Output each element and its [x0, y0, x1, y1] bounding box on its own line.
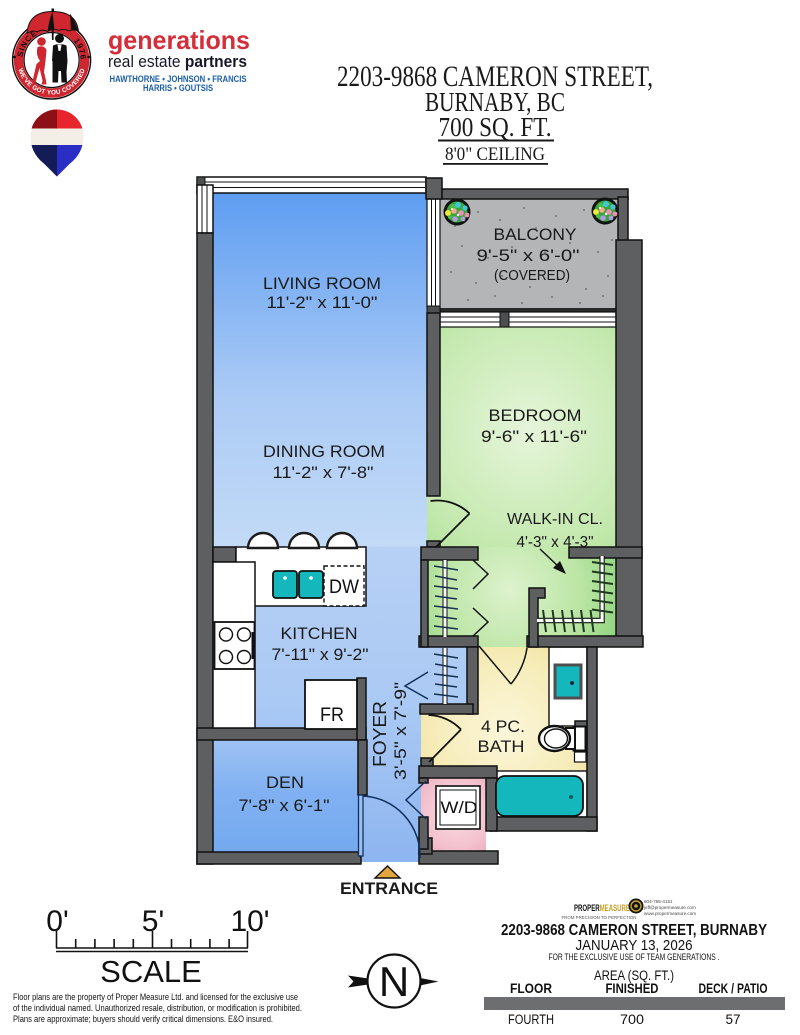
svg-text:FR: FR [320, 705, 344, 726]
svg-text:FINISHED: FINISHED [606, 981, 659, 996]
svg-text:FROM PRECISION TO PERFECTION: FROM PRECISION TO PERFECTION [562, 915, 637, 920]
svg-text:11'-2" x 7'-8": 11'-2" x 7'-8" [273, 463, 374, 482]
svg-text:FLOOR: FLOOR [510, 981, 552, 996]
svg-text:real estate partners: real estate partners [108, 52, 247, 71]
svg-text:BEDROOM: BEDROOM [489, 406, 582, 425]
svg-text:11'-2" x 11'-0": 11'-2" x 11'-0" [267, 293, 378, 312]
svg-text:of the individual named. Unaut: of the individual named. Unauthorized re… [13, 1003, 302, 1014]
svg-text:DECK / PATIO: DECK / PATIO [699, 981, 768, 996]
svg-text:DEN: DEN [266, 773, 304, 792]
svg-text:3'-5" x 7'-9": 3'-5" x 7'-9" [391, 682, 410, 780]
svg-text:BALCONY: BALCONY [494, 225, 577, 244]
svg-text:Plans are approximate; buyers: Plans are approximate; buyers should ver… [13, 1014, 273, 1025]
svg-text:DINING ROOM: DINING ROOM [263, 442, 385, 461]
svg-text:FOURTH: FOURTH [508, 1012, 554, 1027]
svg-text:9'-6" x 11'-6": 9'-6" x 11'-6" [481, 427, 587, 446]
svg-text:604-755-4151: 604-755-4151 [644, 899, 673, 904]
svg-text:W/D: W/D [441, 799, 478, 817]
svg-text:www.propermeasure.com: www.propermeasure.com [644, 911, 696, 916]
svg-text:4'-3" x 4'-3": 4'-3" x 4'-3" [517, 534, 594, 551]
svg-text:generations: generations [108, 25, 250, 55]
svg-text:N: N [379, 958, 409, 1005]
svg-text:Floor plans are the property o: Floor plans are the property of Proper M… [13, 992, 298, 1003]
svg-text:7'-11" x 9'-2": 7'-11" x 9'-2" [272, 645, 369, 664]
svg-text:8'0" CEILING: 8'0" CEILING [445, 144, 545, 165]
svg-text:SCALE: SCALE [100, 954, 202, 989]
svg-text:HARRIS • GOUTSIS: HARRIS • GOUTSIS [143, 83, 213, 94]
svg-text:4 PC.: 4 PC. [481, 717, 525, 736]
svg-text:9'-5" x 6'-0": 9'-5" x 6'-0" [477, 246, 580, 265]
svg-text:10': 10' [230, 905, 269, 938]
svg-text:WALK-IN CL.: WALK-IN CL. [507, 511, 603, 528]
svg-text:jeff@propermeasure.com: jeff@propermeasure.com [643, 905, 696, 910]
svg-text:DW: DW [329, 577, 359, 598]
svg-text:57: 57 [726, 1012, 741, 1027]
svg-text:BATH: BATH [478, 737, 525, 756]
svg-text:(COVERED): (COVERED) [494, 267, 570, 284]
svg-text:700: 700 [620, 1012, 644, 1027]
svg-text:PROPERMEASURE: PROPERMEASURE [574, 903, 630, 914]
svg-text:LIVING ROOM: LIVING ROOM [263, 274, 381, 293]
svg-text:0': 0' [46, 905, 68, 938]
svg-text:ENTRANCE: ENTRANCE [340, 880, 438, 898]
svg-text:KITCHEN: KITCHEN [281, 624, 358, 643]
svg-text:700 SQ. FT.: 700 SQ. FT. [439, 112, 552, 142]
svg-text:FOYER: FOYER [370, 701, 390, 767]
svg-text:7'-8" x 6'-1": 7'-8" x 6'-1" [239, 796, 330, 815]
svg-text:FOR THE EXCLUSIVE USE OF TEAM: FOR THE EXCLUSIVE USE OF TEAM GENERATION… [549, 952, 720, 962]
